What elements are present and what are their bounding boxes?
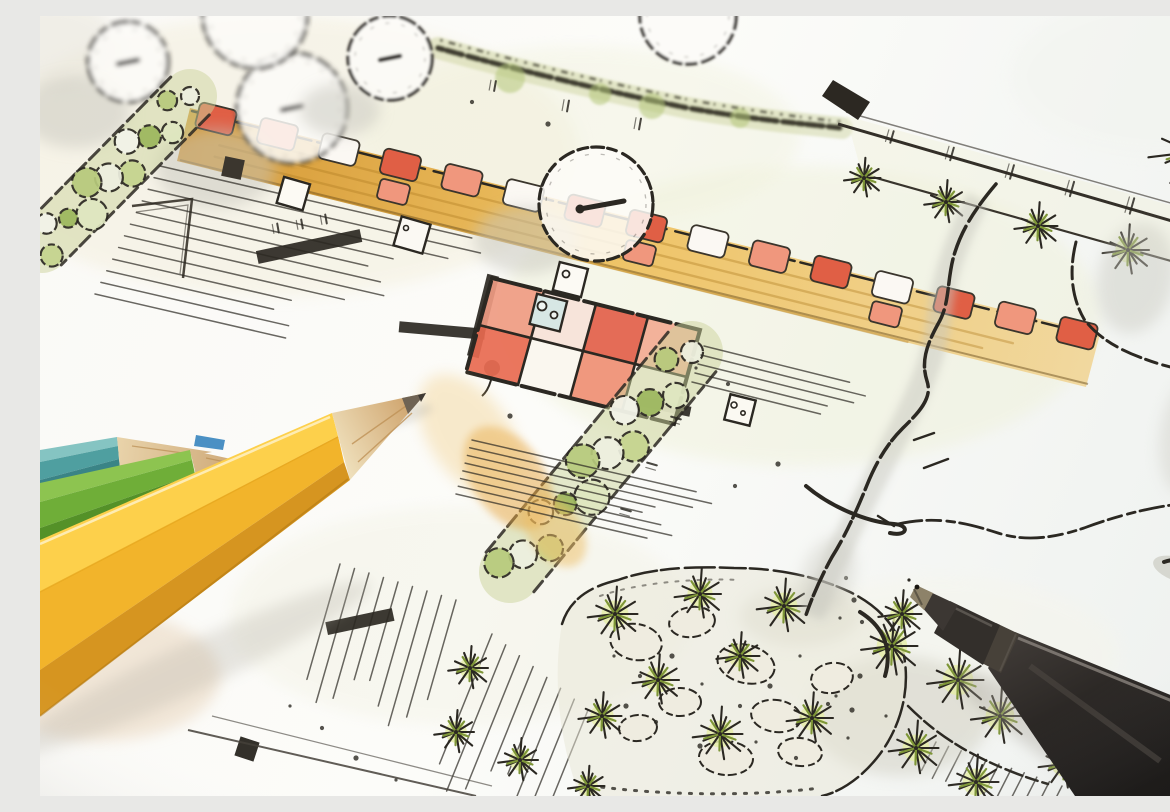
photo-canvas xyxy=(40,16,1170,796)
photo-landscape-plan: Photograph of a hand-drawn landscape arc… xyxy=(40,16,1170,796)
vignette xyxy=(40,16,1170,796)
